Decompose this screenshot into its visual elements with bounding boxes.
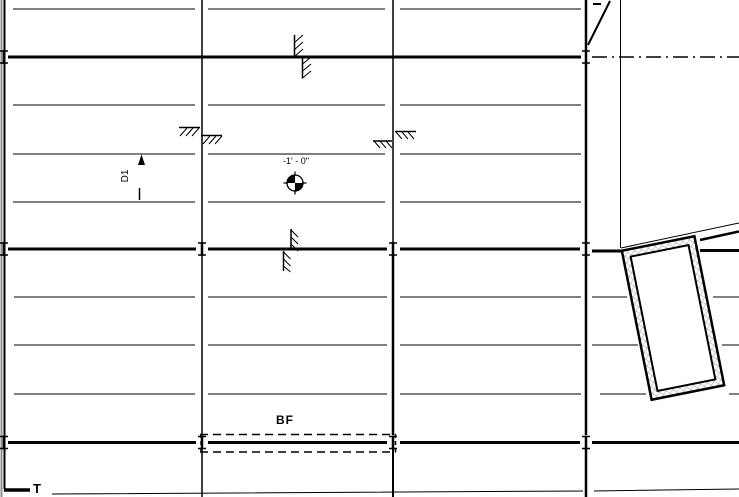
spot-elevation-symbol <box>284 172 307 195</box>
spot-elevation-label: -1' - 0" <box>272 157 320 166</box>
top-right-diagonals <box>588 1 739 248</box>
deck-span-arrow <box>138 155 145 201</box>
edge-label: T <box>33 482 41 495</box>
rotated-shaft-walls <box>622 236 724 400</box>
plan-linework <box>0 0 739 497</box>
drawing-canvas[interactable]: -1' - 0" D1 BF T <box>0 0 739 497</box>
deck-span-tag[interactable]: D1 <box>121 162 135 190</box>
braced-frame-label[interactable]: BF <box>276 414 294 426</box>
